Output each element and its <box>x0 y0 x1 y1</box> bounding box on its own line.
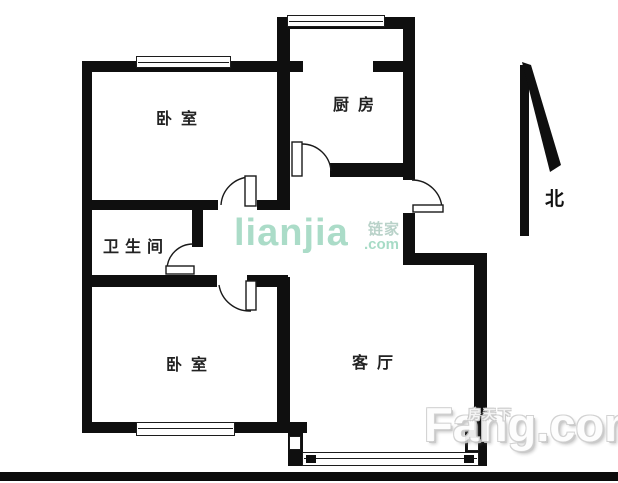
window-living-room <box>302 452 479 466</box>
north-label: 北 <box>545 184 564 211</box>
wall-bathroom-bottom-left <box>82 275 217 287</box>
floor-plan-image: 卧室 厨房 卫生间 卧室 客厅 北 LIANJIA 链家 .com Fang.c… <box>0 0 618 483</box>
wall-bathroom-east <box>192 200 203 247</box>
window-living-left-jamb <box>306 455 316 463</box>
wall-facade-stub-right <box>373 61 415 72</box>
window-bedroom-south <box>136 422 235 436</box>
wall-bedroom-north-bottom-right <box>257 200 290 210</box>
wall-west <box>82 61 92 433</box>
wall-kitchen-west <box>277 17 290 210</box>
door-arc-bedroom-south <box>219 285 251 311</box>
door-leaf-kitchen <box>292 142 302 176</box>
door-leaf-bathroom <box>166 266 194 274</box>
door-leaf-bedroom-north <box>245 176 256 206</box>
photo-bottom-bar <box>0 472 618 481</box>
room-label-bedroom-south: 卧室 <box>166 351 216 375</box>
door-arc-kitchen <box>302 144 331 171</box>
fang-logo-text: Fang.com <box>424 398 618 451</box>
window-bay-side-left <box>289 436 301 450</box>
wall-kitchen-east-upper <box>403 17 415 180</box>
wall-partition-living <box>277 277 290 427</box>
room-label-kitchen: 厨房 <box>333 91 383 115</box>
window-kitchen <box>287 15 385 27</box>
door-arc-entry <box>412 180 442 209</box>
room-label-bathroom: 卫生间 <box>103 233 169 257</box>
fang-cjk-text: 房天下 <box>468 404 513 423</box>
door-arc-bathroom <box>167 244 193 269</box>
wall-kitchen-bottom <box>330 163 415 177</box>
wall-facade-stub-left <box>277 61 303 72</box>
window-bedroom-north <box>136 56 231 68</box>
room-label-bedroom-north: 卧室 <box>156 105 206 129</box>
door-leaf-entry <box>413 205 443 212</box>
lianjia-logo-text: LIANJIA <box>234 212 349 254</box>
room-label-living-room: 客厅 <box>352 349 402 373</box>
fang-watermark: Fang.com 房天下 <box>424 401 618 448</box>
window-living-right-jamb <box>464 455 474 463</box>
lianjia-watermark: LIANJIA 链家 .com <box>234 214 349 252</box>
door-arc-bedroom-north <box>221 177 250 205</box>
lianjia-tld-text: .com <box>364 236 399 253</box>
